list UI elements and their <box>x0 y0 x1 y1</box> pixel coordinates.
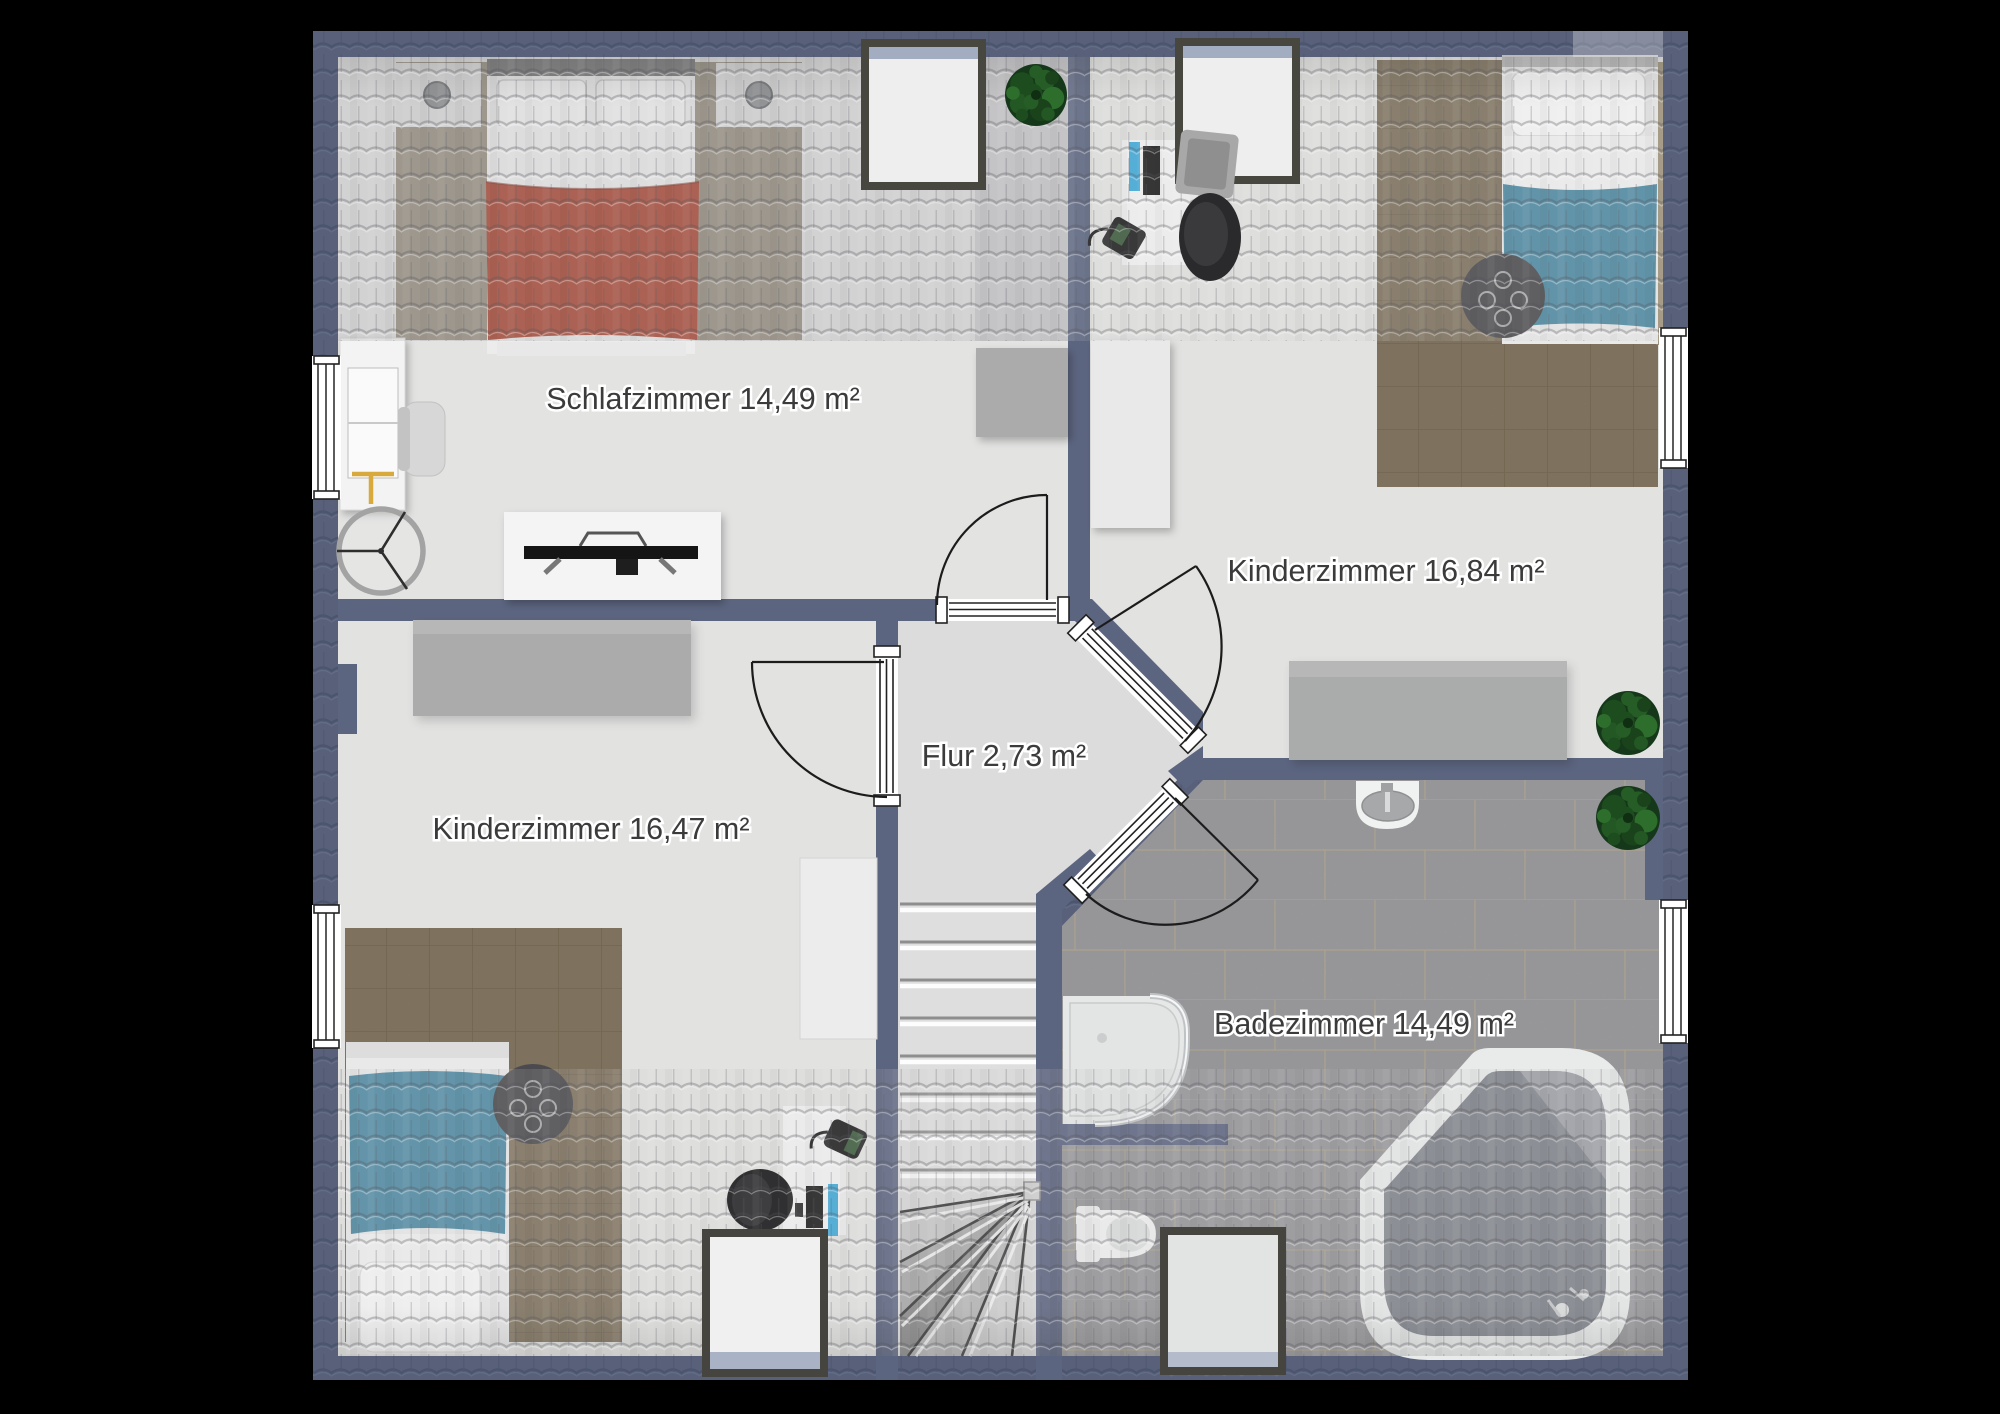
svg-text:Flur 2,73 m²: Flur 2,73 m² <box>922 739 1086 773</box>
svg-text:Badezimmer 14,49 m²: Badezimmer 14,49 m² <box>1214 1007 1514 1041</box>
svg-text:Schlafzimmer 14,49 m²: Schlafzimmer 14,49 m² <box>546 382 860 416</box>
svg-text:Kinderzimmer 16,84 m²: Kinderzimmer 16,84 m² <box>1228 554 1545 588</box>
svg-text:Kinderzimmer 16,47 m²: Kinderzimmer 16,47 m² <box>433 812 750 846</box>
